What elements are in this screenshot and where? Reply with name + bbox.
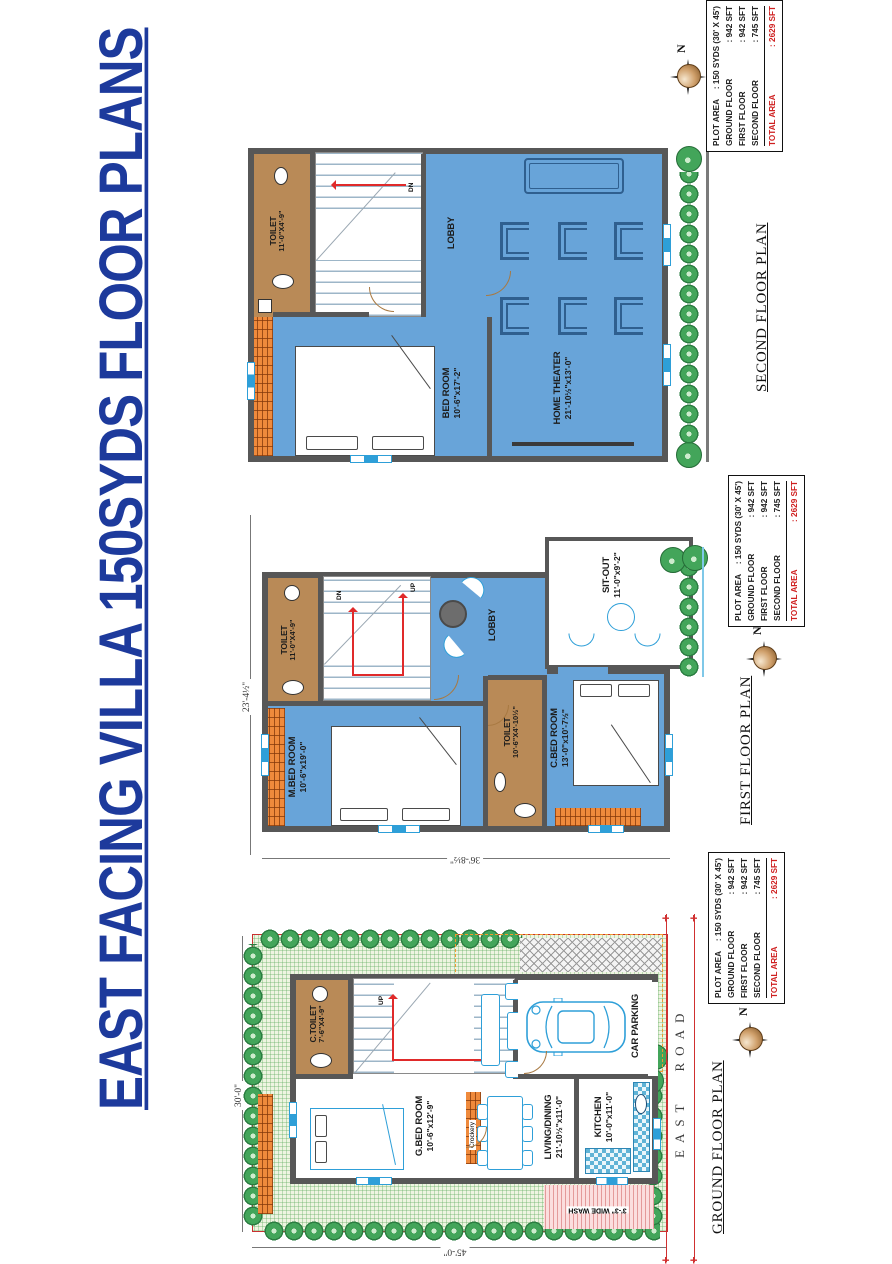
survey-cross: +	[686, 1256, 701, 1264]
chair-icon	[477, 1104, 488, 1120]
stair-up-label: UP	[378, 996, 385, 1005]
room-toilet: TOILET 11'-0"X4'-9"	[254, 154, 310, 317]
stair-up-label: UP	[410, 583, 417, 592]
table-label: SECOND FLOOR	[771, 555, 784, 621]
chair-icon	[522, 1126, 533, 1142]
sitout-chair-icon	[635, 634, 661, 647]
pillow-icon	[618, 684, 650, 697]
compass-orb	[739, 1027, 763, 1051]
balcony-brick-strip	[254, 316, 273, 456]
stair-arrowhead	[326, 180, 336, 190]
first-depth-dimension: 36'-8½"	[447, 854, 483, 864]
sink-icon	[284, 585, 300, 601]
stair-path	[392, 997, 394, 1061]
road-edge-line	[666, 914, 667, 1262]
room-toilet-top: TOILET 11'-0"X4'-9"	[268, 578, 318, 701]
first-width-dimension: 23'-4½"	[242, 679, 252, 715]
stair-path	[352, 674, 402, 676]
room-lobby: LOBBY	[429, 578, 545, 676]
label-sit-out: SIT-OUT 11'-0"x9'-2"	[601, 541, 622, 609]
lobby-table-icon	[439, 600, 467, 628]
theater-screen	[512, 442, 634, 446]
wardrobe-strip	[268, 708, 285, 826]
wc-icon	[514, 803, 536, 818]
tree-icon	[676, 442, 702, 468]
east-road-label: EAST ROAD	[672, 1007, 688, 1158]
table-value: : 745 SFT	[751, 858, 764, 894]
chair-icon	[522, 1150, 533, 1166]
table-label: GROUND FLOOR	[745, 554, 758, 621]
label-toilet: TOILET 11'-0"X4'-9"	[268, 197, 287, 265]
pillow-icon	[402, 808, 450, 821]
table-label: PLOT AREA	[710, 99, 723, 146]
compass-icon: N	[666, 55, 710, 99]
label-home-theater: HOME THEATER 21'-10½"x13'-0"	[552, 342, 573, 434]
car-wash-label: 3'-3" WIDE WASH	[566, 1206, 628, 1213]
blanket-fold	[419, 717, 457, 765]
table-value: : 2629 SFT	[766, 6, 779, 47]
pillow-icon	[306, 436, 358, 450]
table-value: : 2629 SFT	[788, 481, 801, 522]
room-home-theater: HOME THEATER 21'-10½"x13'-0"	[492, 154, 662, 456]
chair-icon	[477, 1150, 488, 1166]
table-value: : 942 SFT	[738, 858, 751, 894]
table-value: : 150 SYDS (30' X 45')	[712, 858, 725, 941]
stair-arrowhead	[348, 602, 358, 612]
second-floor-plan-group: TOILET 11'-0"X4'-9" DN	[230, 0, 855, 472]
window	[350, 455, 392, 463]
window	[289, 1102, 297, 1138]
pillow-icon	[315, 1115, 327, 1137]
survey-cross: +	[658, 1256, 673, 1264]
blanket-fold	[391, 335, 431, 389]
area-table-first: PLOT AREA: 150 SYDS (30' X 45') GROUND F…	[728, 475, 805, 627]
stair-path	[352, 610, 354, 676]
label-toilet-top: TOILET 11'-0"X4'-9"	[279, 607, 298, 673]
first-floor-plan-group: 23'-4½" 36'-8½" M.BED ROOM 10'-6"x19'-0"	[230, 467, 855, 867]
table-value: : 150 SYDS (30' X 45')	[732, 481, 745, 564]
window	[663, 344, 671, 386]
bed-icon	[331, 726, 461, 826]
label-c-bed: C.BED ROOM 13'-0"x10'-7½"	[549, 690, 570, 786]
label-c-toilet: C.TOILET 7'-6"X4'-9"	[308, 994, 327, 1054]
kitchen-platform-tiles	[585, 1148, 631, 1174]
label-bed: BED ROOM 10'-6"x17'-2"	[441, 348, 462, 438]
pillow-icon	[372, 436, 424, 450]
wc-icon	[282, 680, 304, 695]
lobby-chair-icon	[438, 635, 465, 663]
compass-north-label: N	[750, 626, 765, 635]
first-house: M.BED ROOM 10'-6"x19'-0" TOILET 11'-0"X4…	[262, 572, 670, 832]
room-bed: BED ROOM 10'-6"x17'-2"	[273, 317, 487, 456]
stair-arrowhead	[398, 588, 408, 598]
compass-north-label: N	[674, 44, 689, 53]
table-value: : 2629 SFT	[768, 858, 781, 899]
table-label: GROUND FLOOR	[723, 79, 736, 146]
ground-depth-dimension: 45'-0"	[440, 1246, 469, 1256]
label-lobby-2: LOBBY	[446, 208, 457, 258]
second-house: TOILET 11'-0"X4'-9" DN	[248, 148, 668, 462]
car-icon	[524, 998, 628, 1056]
bed-icon	[573, 680, 659, 786]
theater-seat-icon	[558, 297, 587, 335]
table-label: TOTAL AREA	[788, 569, 801, 621]
first-plan-title: FIRST FLOOR PLAN	[738, 676, 755, 825]
page-title: EAST FACING VILLA 150SYDS FLOOR PLANS	[86, 27, 157, 1110]
chair-icon	[522, 1104, 533, 1120]
table-value: : 745 SFT	[749, 6, 762, 42]
area-table-second: PLOT AREA: 150 SYDS (30' X 45') GROUND F…	[706, 0, 783, 152]
compass-orb	[677, 64, 701, 88]
wall-partition	[518, 1074, 652, 1079]
garage-opening	[648, 982, 658, 1076]
room-lobby-2: LOBBY	[426, 154, 484, 312]
area-table-ground: PLOT AREA: 150 SYDS (30' X 45') GROUND F…	[708, 852, 785, 1004]
label-g-bed: G.BED ROOM 10'-6"x12'-9"	[414, 1088, 435, 1164]
window	[588, 825, 624, 833]
room-kitchen: KITCHEN 10'-0"x11'-0"	[579, 1079, 652, 1178]
sitout-opening	[558, 667, 608, 676]
table-value: : 942 SFT	[725, 858, 738, 894]
theater-seat-icon	[614, 297, 643, 335]
stair-arrowhead	[388, 989, 398, 999]
ground-house: C.TOILET 7'-6"X4'-9" UP	[290, 974, 658, 1184]
first-stairs: DN UP	[323, 576, 431, 701]
road-edge-line	[694, 914, 695, 1262]
table-label: GROUND FLOOR	[725, 931, 738, 998]
pillow-icon	[580, 684, 612, 697]
theater-seat-icon	[500, 297, 529, 335]
table-value: : 745 SFT	[771, 481, 784, 517]
wardrobe-strip	[555, 808, 641, 826]
bed-icon	[310, 1108, 404, 1170]
label-living-dining: LIVING/DINING 21'-10½"x11'-0"	[543, 1082, 564, 1172]
sink-icon	[494, 772, 506, 792]
sofa-icon	[481, 994, 500, 1066]
stair-dn-label: DN	[408, 183, 415, 192]
room-c-toilet: C.TOILET 7'-6"X4'-9"	[296, 980, 348, 1074]
table-label: SECOND FLOOR	[751, 932, 764, 998]
sitout-chair-icon	[569, 634, 595, 647]
table-value: : 942 SFT	[723, 6, 736, 42]
ground-floor-plan-group: 30'-0" 45'-0" 3'-3" WIDE WASH C.TOILE	[230, 822, 855, 1262]
table-label: TOTAL AREA	[768, 946, 781, 998]
table-label: PLOT AREA	[732, 574, 745, 621]
window	[665, 734, 673, 776]
room-toilet-mid: TOILET 10'-6"X4'-10½"	[488, 680, 542, 826]
stair-path	[334, 184, 406, 186]
table-label: FIRST FLOOR	[758, 566, 771, 621]
table-label: FIRST FLOOR	[738, 943, 751, 998]
compass-north-label: N	[736, 1007, 751, 1016]
wall-partition	[273, 312, 369, 317]
compass-icon: N	[728, 1018, 772, 1062]
blanket-fold	[382, 1104, 396, 1165]
table-value: : 942 SFT	[745, 481, 758, 517]
stair-path	[392, 1059, 488, 1061]
table-value: : 942 SFT	[758, 481, 771, 517]
wall-partition	[268, 701, 483, 706]
table-value: : 150 SYDS (30' X 45')	[710, 6, 723, 89]
shower-icon	[258, 299, 272, 313]
label-kitchen: KITCHEN 10'-0"x11'-0"	[593, 1086, 614, 1148]
lobby-chair-icon	[461, 572, 489, 599]
blanket-fold	[611, 724, 651, 783]
window	[653, 1118, 661, 1150]
theater-seat-icon	[500, 222, 529, 260]
sink-icon	[274, 167, 288, 185]
label-m-bed: M.BED ROOM 10'-6"x19'-0"	[287, 722, 308, 812]
ground-plan-title: GROUND FLOOR PLAN	[710, 1060, 727, 1234]
room-c-bed: C.BED ROOM 13'-0"x10'-7½"	[547, 674, 664, 826]
compass-orb	[753, 646, 777, 670]
sofa-icon	[524, 158, 624, 194]
window	[596, 1177, 628, 1185]
window	[356, 1177, 392, 1185]
label-lobby: LOBBY	[487, 600, 498, 650]
wc-icon	[310, 1053, 332, 1068]
window	[378, 825, 420, 833]
tree-row-sitout	[678, 553, 700, 677]
wc-icon	[272, 274, 294, 289]
room-m-bed: M.BED ROOM 10'-6"x19'-0"	[285, 706, 483, 826]
window	[247, 362, 255, 400]
kitchen-sink-icon	[635, 1094, 647, 1114]
window	[663, 224, 671, 266]
survey-cross: +	[658, 914, 673, 922]
stair-path	[402, 596, 404, 676]
label-car-parking: CAR PARKING	[630, 994, 641, 1058]
rotated-sheet: EAST FACING VILLA 150SYDS FLOOR PLANS 30…	[0, 0, 892, 1262]
theater-seat-icon	[614, 222, 643, 260]
patio-brick-strip	[258, 1094, 273, 1214]
door-arc	[434, 675, 459, 700]
car-wash-area: 3'-3" WIDE WASH	[544, 1185, 654, 1229]
bed-icon	[295, 346, 435, 456]
table-value: : 942 SFT	[736, 6, 749, 42]
table-label: FIRST FLOOR	[736, 91, 749, 146]
room-g-bed: G.BED ROOM 10'-6"x12'-9"	[296, 1079, 466, 1178]
table-label: SECOND FLOOR	[749, 80, 762, 146]
terrace-rail	[706, 148, 709, 462]
sitout-rail	[702, 547, 704, 677]
table-label: PLOT AREA	[712, 951, 725, 998]
dining-table-icon	[487, 1096, 523, 1170]
stair-treads	[324, 664, 430, 700]
pillow-icon	[315, 1141, 327, 1163]
table-label: TOTAL AREA	[766, 94, 779, 146]
floor-plan-sheet: { "title": "EAST FACING VILLA 150SYDS FL…	[0, 0, 892, 1262]
compass-icon: N	[742, 637, 786, 681]
tree-icon	[676, 146, 702, 172]
tree-row-terrace	[678, 172, 700, 444]
theater-seat-icon	[558, 222, 587, 260]
tree-icon	[682, 545, 708, 571]
stair-dn-label: DN	[336, 591, 343, 600]
wall-partition	[488, 675, 547, 680]
survey-cross: +	[686, 914, 701, 922]
label-toilet-mid: TOILET 10'-6"X4'-10½"	[502, 692, 521, 772]
pillow-icon	[340, 808, 388, 821]
second-plan-title: SECOND FLOOR PLAN	[754, 223, 771, 392]
window	[261, 734, 269, 776]
